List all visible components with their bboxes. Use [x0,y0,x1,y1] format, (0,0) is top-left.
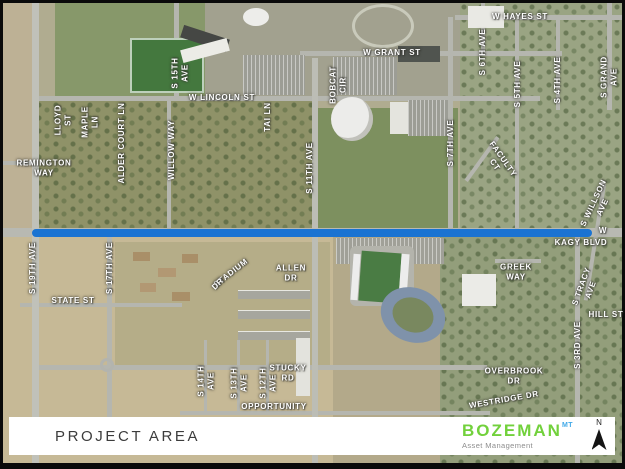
road-s17th [107,233,112,438]
road-remington [3,161,35,165]
campus-quad-circle [352,4,414,48]
project-area-map-figure: W HAYES STW GRANT STW LINCOLN STREMINGTO… [0,0,625,469]
roundabout [100,358,114,372]
road-w-lincoln [35,96,540,101]
building [158,268,176,277]
brand-logo: BOZEMANMT Asset Management [462,422,573,450]
building [296,338,310,396]
terrain-meadow [35,101,316,233]
building [140,283,156,292]
fieldhouse-dome [331,97,373,141]
road-s7th [448,17,453,233]
brand-state: MT [562,422,573,429]
page-title: PROJECT AREA [55,417,200,455]
brand-tagline: Asset Management [462,442,573,450]
road-s14th [204,340,207,412]
parking-lot [243,55,305,95]
building [182,254,198,263]
north-label: N [587,419,611,427]
building [462,274,496,306]
road-s-grand [607,3,612,110]
north-arrow-icon [592,429,607,450]
footer-bar: PROJECT AREA BOZEMANMT Asset Management … [9,417,615,455]
road-willow [167,100,171,233]
road-s5th [515,17,519,233]
road-state-st [20,303,182,307]
apartment-row [238,290,310,299]
brand-name: BOZEMAN [462,421,562,440]
road-s11th [312,58,318,463]
north-arrow: N [587,419,611,453]
road-s13th [237,340,240,412]
terrain-dirt [3,3,32,233]
road-s4th [556,17,560,110]
road-s12th [266,340,269,412]
road-opportunity [180,411,490,415]
parking-lot [333,57,397,95]
building [398,46,440,62]
project-area-line [32,229,592,237]
apartment-row [238,310,310,319]
building [243,8,269,26]
building [172,292,190,301]
road-greek-way [495,259,541,263]
parking-lot [408,100,448,136]
building [133,252,150,261]
building [468,6,504,28]
